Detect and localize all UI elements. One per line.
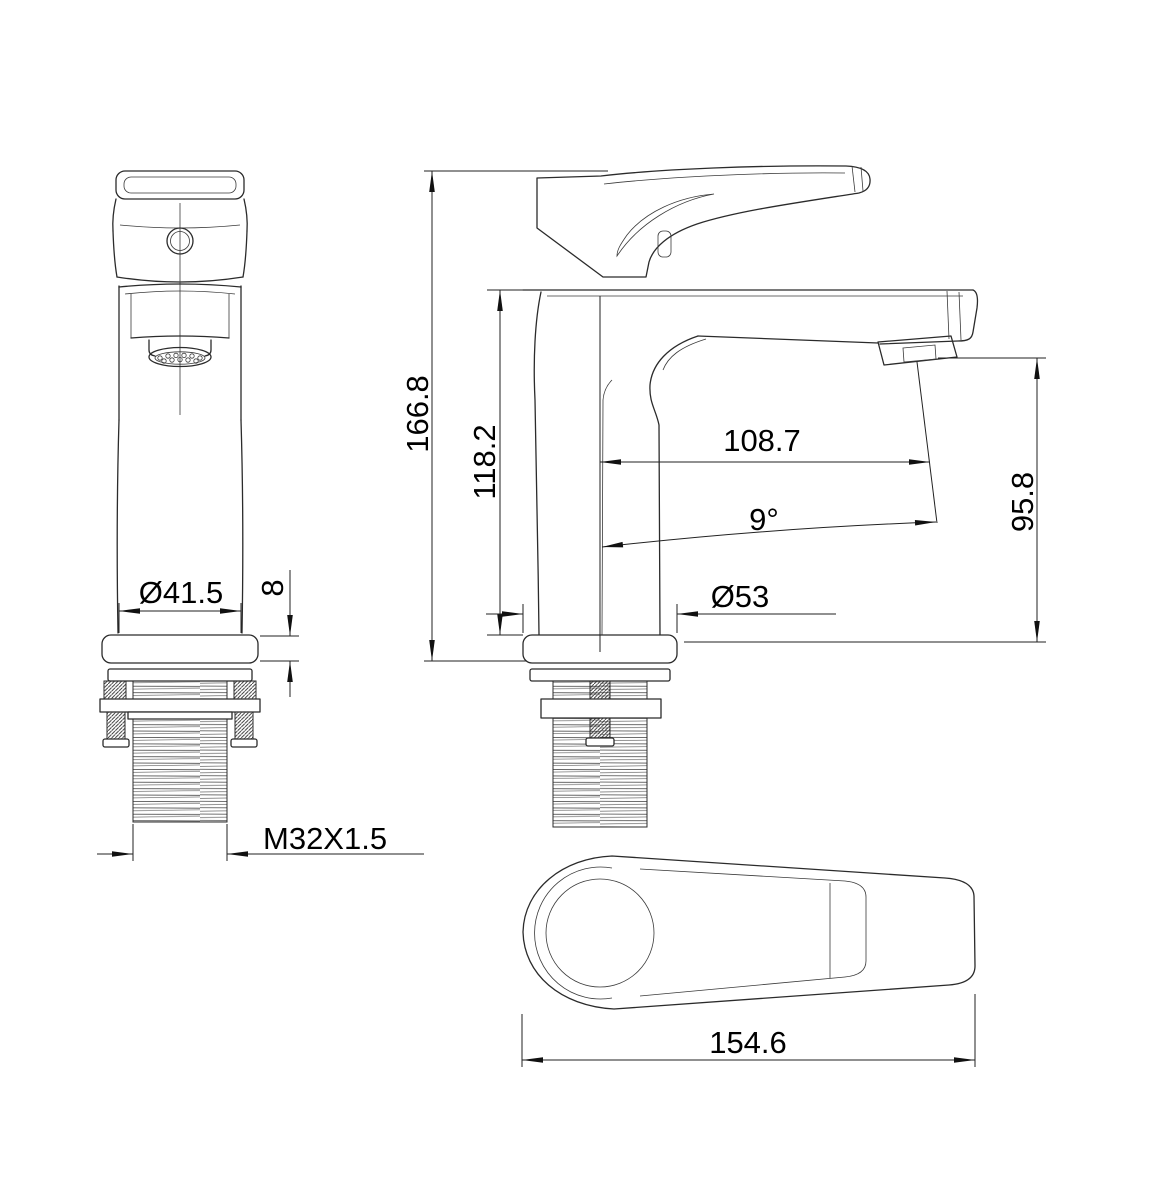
side-handle-cap-outline bbox=[537, 166, 870, 277]
dim-label-flange-diameter: Ø53 bbox=[711, 579, 770, 614]
side-spout-end bbox=[880, 290, 978, 344]
dim-spout-height: 118.2 bbox=[467, 290, 523, 635]
side-stud-lower bbox=[590, 718, 610, 738]
side-washer bbox=[530, 669, 670, 681]
front-stud-right-upper bbox=[234, 681, 256, 699]
side-body-left bbox=[534, 292, 541, 635]
dim-label-overall-height: 166.8 bbox=[400, 375, 435, 453]
front-stud-right-lower bbox=[235, 712, 253, 739]
side-spout-underside bbox=[698, 336, 878, 343]
front-cap-left-side bbox=[113, 231, 117, 277]
faucet-technical-drawing: 166.8 118.2 108.7 9° 95.8 bbox=[0, 0, 1154, 1200]
dim-label-body-diameter: Ø41.5 bbox=[139, 575, 223, 610]
dim-spout-angle: 9° bbox=[602, 502, 936, 547]
side-body-seam bbox=[602, 380, 612, 635]
side-lever-scoop bbox=[617, 194, 714, 256]
front-stud-right-foot bbox=[231, 739, 257, 747]
side-stud-foot bbox=[586, 738, 614, 746]
front-view bbox=[100, 171, 260, 822]
top-view bbox=[523, 856, 975, 1009]
front-thread-shank bbox=[133, 719, 227, 822]
dim-label-handle-length: 154.6 bbox=[709, 1025, 787, 1060]
side-lever-tip-facet1 bbox=[852, 166, 855, 192]
front-collar bbox=[128, 712, 232, 719]
top-handle-inner-face bbox=[640, 869, 866, 996]
dim-label-thread-spec: M32X1.5 bbox=[263, 821, 387, 856]
front-cap-left-flare bbox=[113, 199, 116, 231]
front-stud-left-upper bbox=[104, 681, 126, 699]
dim-flange-thickness: 8 bbox=[255, 570, 299, 697]
front-stud-left-foot bbox=[103, 739, 129, 747]
front-handle-outline bbox=[116, 171, 244, 199]
side-body-right bbox=[650, 336, 698, 635]
side-spout-end-facet2 bbox=[959, 292, 961, 340]
side-underside-echo bbox=[663, 339, 706, 370]
dim-label-spout-reach: 108.7 bbox=[723, 423, 801, 458]
dim-label-spout-angle: 9° bbox=[749, 502, 779, 537]
side-lever-inner-line bbox=[604, 173, 845, 184]
front-washer bbox=[108, 669, 252, 681]
front-thread-upper bbox=[133, 681, 227, 699]
front-column-left bbox=[117, 420, 119, 633]
front-cap-right-flare bbox=[244, 199, 247, 231]
side-locknut bbox=[541, 699, 661, 718]
dim-label-flange-thickness: 8 bbox=[255, 579, 290, 596]
front-locknut bbox=[100, 699, 260, 712]
front-stud-left-lower bbox=[107, 712, 125, 739]
front-column-right bbox=[241, 420, 243, 633]
dim-label-outlet-height: 95.8 bbox=[1005, 472, 1040, 532]
side-aerator-inner bbox=[903, 345, 936, 362]
dim-thread-spec: M32X1.5 bbox=[97, 821, 424, 861]
side-spout-end-facet1 bbox=[947, 291, 949, 339]
drawing-page: 166.8 118.2 108.7 9° 95.8 bbox=[0, 0, 1154, 1200]
side-view bbox=[523, 166, 978, 827]
side-stud-upper bbox=[590, 681, 610, 699]
dim-body-diameter: Ø41.5 bbox=[119, 575, 241, 633]
top-handle-hub-circle bbox=[546, 879, 654, 987]
dim-overall-height: 166.8 bbox=[400, 171, 608, 661]
dimensions: 166.8 118.2 108.7 9° 95.8 bbox=[97, 171, 1046, 1067]
front-handle-inner bbox=[124, 177, 236, 193]
front-flange bbox=[102, 635, 258, 663]
dim-label-spout-height: 118.2 bbox=[467, 424, 502, 499]
side-lever-tip-facet2 bbox=[861, 167, 863, 191]
front-cap-right-side bbox=[243, 231, 247, 277]
